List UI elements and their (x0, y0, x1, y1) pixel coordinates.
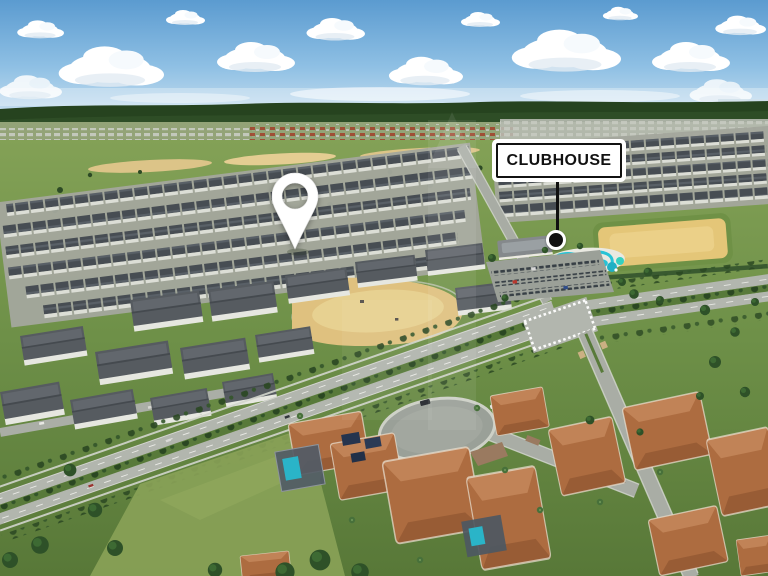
clubhouse-label-text: CLUBHOUSE (507, 152, 612, 170)
water-slide (616, 257, 624, 265)
clubhouse-label: CLUBHOUSE (496, 143, 622, 178)
map-pin-icon (269, 171, 321, 251)
aerial-photo: CLUBHOUSE (0, 0, 768, 576)
leader-line (556, 178, 559, 233)
aerial-photo-painting (0, 0, 768, 576)
pool-screen-enclosure (275, 444, 325, 491)
location-dot (546, 230, 566, 250)
